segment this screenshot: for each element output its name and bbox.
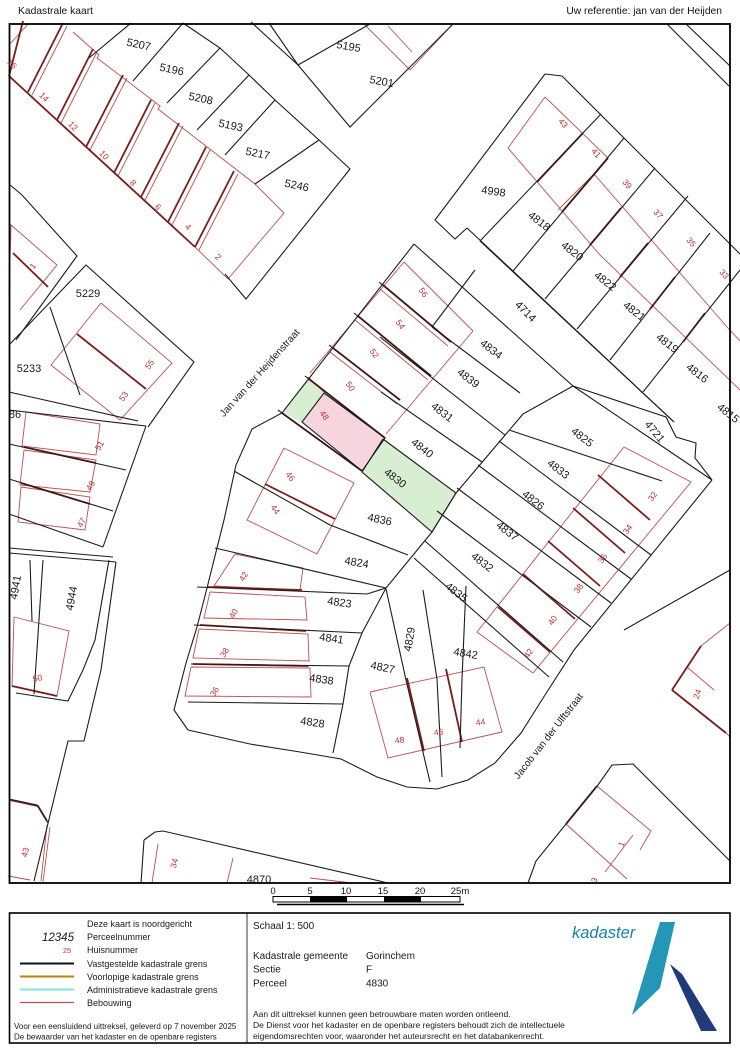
svg-text:42: 42 bbox=[522, 646, 536, 660]
svg-text:5233: 5233 bbox=[17, 363, 41, 375]
svg-text:Sectie: Sectie bbox=[253, 965, 281, 976]
svg-text:5208: 5208 bbox=[187, 91, 213, 108]
svg-text:41: 41 bbox=[589, 146, 603, 160]
svg-text:4839: 4839 bbox=[455, 366, 482, 391]
svg-text:5: 5 bbox=[307, 886, 312, 897]
svg-text:4837: 4837 bbox=[494, 519, 521, 544]
svg-text:56: 56 bbox=[417, 286, 431, 300]
svg-text:51: 51 bbox=[93, 439, 107, 452]
svg-text:5193: 5193 bbox=[217, 118, 243, 135]
svg-text:eigendomsrechten voor, waarond: eigendomsrechten voor, waaronder het aut… bbox=[253, 1031, 544, 1041]
svg-text:86: 86 bbox=[9, 409, 21, 421]
svg-text:De Dienst voor het kadaster en: De Dienst voor het kadaster en de openba… bbox=[253, 1020, 565, 1030]
svg-text:4829: 4829 bbox=[402, 626, 418, 652]
svg-text:4823: 4823 bbox=[326, 595, 352, 610]
svg-text:4828: 4828 bbox=[299, 715, 325, 730]
svg-text:15: 15 bbox=[378, 886, 389, 897]
svg-text:Administratieve kadastrale gre: Administratieve kadastrale grens bbox=[87, 985, 218, 995]
svg-text:4815: 4815 bbox=[715, 401, 740, 426]
svg-text:4836: 4836 bbox=[366, 512, 392, 529]
svg-text:4830: 4830 bbox=[366, 979, 389, 990]
svg-text:5195: 5195 bbox=[335, 39, 361, 55]
svg-text:4838: 4838 bbox=[308, 672, 334, 687]
svg-text:4721: 4721 bbox=[642, 419, 667, 445]
svg-text:4819: 4819 bbox=[654, 331, 681, 356]
svg-text:52: 52 bbox=[368, 347, 382, 361]
svg-text:Bebouwing: Bebouwing bbox=[87, 998, 132, 1008]
svg-text:4842: 4842 bbox=[452, 646, 478, 662]
svg-text:F: F bbox=[366, 965, 372, 976]
svg-text:35: 35 bbox=[684, 235, 698, 249]
svg-text:Jacob van der Ulftstraat: Jacob van der Ulftstraat bbox=[512, 691, 586, 781]
svg-text:4941: 4941 bbox=[8, 574, 24, 600]
svg-text:40: 40 bbox=[546, 613, 560, 627]
svg-text:44: 44 bbox=[475, 716, 486, 727]
svg-text:4841: 4841 bbox=[318, 631, 344, 646]
svg-text:4998: 4998 bbox=[480, 184, 506, 199]
svg-text:24: 24 bbox=[691, 688, 704, 701]
svg-text:Uw referentie: jan van der Hei: Uw referentie: jan van der Heijden bbox=[566, 6, 722, 17]
svg-text:Deze kaart is noordgericht: Deze kaart is noordgericht bbox=[87, 919, 193, 929]
svg-text:4831: 4831 bbox=[429, 400, 456, 425]
svg-text:53: 53 bbox=[117, 389, 131, 403]
svg-text:34: 34 bbox=[168, 857, 180, 869]
svg-text:44: 44 bbox=[269, 503, 283, 517]
svg-text:5207: 5207 bbox=[125, 37, 151, 54]
svg-text:Aan dit uittreksel kunnen geen: Aan dit uittreksel kunnen geen betrouwba… bbox=[253, 1009, 511, 1019]
svg-text:4820: 4820 bbox=[559, 239, 586, 264]
svg-text:10: 10 bbox=[341, 886, 352, 897]
svg-text:5201: 5201 bbox=[368, 74, 394, 90]
svg-text:kadaster: kadaster bbox=[572, 924, 637, 942]
svg-text:Kadastrale kaart: Kadastrale kaart bbox=[18, 6, 93, 17]
svg-text:4: 4 bbox=[183, 222, 194, 233]
svg-text:4834: 4834 bbox=[478, 337, 505, 362]
svg-text:Schaal 1: 500: Schaal 1: 500 bbox=[253, 921, 315, 932]
svg-text:55: 55 bbox=[143, 357, 157, 371]
svg-text:43: 43 bbox=[556, 116, 570, 130]
svg-text:36: 36 bbox=[596, 551, 610, 565]
svg-text:4944: 4944 bbox=[64, 585, 80, 611]
svg-text:4816: 4816 bbox=[684, 361, 711, 386]
svg-text:14: 14 bbox=[37, 90, 51, 104]
svg-text:Vastgestelde kadastrale grens: Vastgestelde kadastrale grens bbox=[87, 959, 208, 969]
svg-text:4870: 4870 bbox=[247, 874, 271, 886]
svg-text:4827: 4827 bbox=[369, 660, 395, 677]
svg-text:20: 20 bbox=[415, 886, 426, 897]
svg-text:46: 46 bbox=[433, 726, 444, 737]
svg-text:47: 47 bbox=[75, 516, 89, 529]
svg-text:4825: 4825 bbox=[569, 425, 596, 450]
svg-text:De bewaarder van het kadaster: De bewaarder van het kadaster en de open… bbox=[14, 1033, 217, 1042]
svg-text:4840: 4840 bbox=[409, 436, 436, 461]
svg-text:5196: 5196 bbox=[158, 62, 184, 79]
svg-text:Perceel: Perceel bbox=[253, 979, 287, 990]
svg-text:5246: 5246 bbox=[283, 178, 309, 195]
svg-text:Voor een eensluidend uittrekse: Voor een eensluidend uittreksel, gelever… bbox=[14, 1022, 237, 1031]
svg-text:50: 50 bbox=[344, 380, 358, 394]
svg-text:4832: 4832 bbox=[469, 550, 496, 575]
svg-text:4822: 4822 bbox=[592, 269, 619, 294]
svg-text:Gorinchem: Gorinchem bbox=[366, 951, 415, 962]
svg-text:Kadastrale gemeente: Kadastrale gemeente bbox=[253, 951, 349, 962]
svg-text:54: 54 bbox=[394, 318, 408, 332]
svg-text:48: 48 bbox=[394, 734, 405, 745]
svg-text:Huisnummer: Huisnummer bbox=[87, 945, 138, 955]
svg-text:5229: 5229 bbox=[76, 288, 100, 300]
svg-text:38: 38 bbox=[572, 581, 586, 595]
svg-text:43: 43 bbox=[19, 846, 31, 858]
svg-text:42: 42 bbox=[237, 570, 251, 583]
svg-text:4821: 4821 bbox=[621, 299, 648, 324]
svg-text:46: 46 bbox=[284, 470, 298, 484]
svg-text:25: 25 bbox=[63, 946, 71, 955]
svg-text:4714: 4714 bbox=[512, 299, 538, 325]
svg-text:2: 2 bbox=[213, 252, 224, 263]
svg-text:4826: 4826 bbox=[520, 488, 547, 513]
svg-text:Voorlopige kadastrale grens: Voorlopige kadastrale grens bbox=[87, 972, 199, 982]
svg-text:32: 32 bbox=[646, 489, 660, 503]
svg-text:1: 1 bbox=[616, 840, 627, 848]
svg-text:49: 49 bbox=[84, 479, 98, 492]
svg-text:4824: 4824 bbox=[343, 555, 369, 571]
svg-text:16: 16 bbox=[5, 57, 19, 71]
svg-text:25m: 25m bbox=[451, 886, 470, 897]
svg-text:4818: 4818 bbox=[526, 209, 553, 234]
svg-text:5217: 5217 bbox=[244, 146, 270, 163]
svg-text:Perceelnummer: Perceelnummer bbox=[87, 932, 151, 942]
svg-text:39: 39 bbox=[620, 177, 634, 191]
svg-text:12345: 12345 bbox=[42, 932, 75, 944]
svg-text:0: 0 bbox=[270, 886, 275, 897]
svg-text:50: 50 bbox=[32, 672, 43, 684]
svg-text:38: 38 bbox=[218, 646, 232, 659]
svg-text:37: 37 bbox=[651, 207, 665, 221]
